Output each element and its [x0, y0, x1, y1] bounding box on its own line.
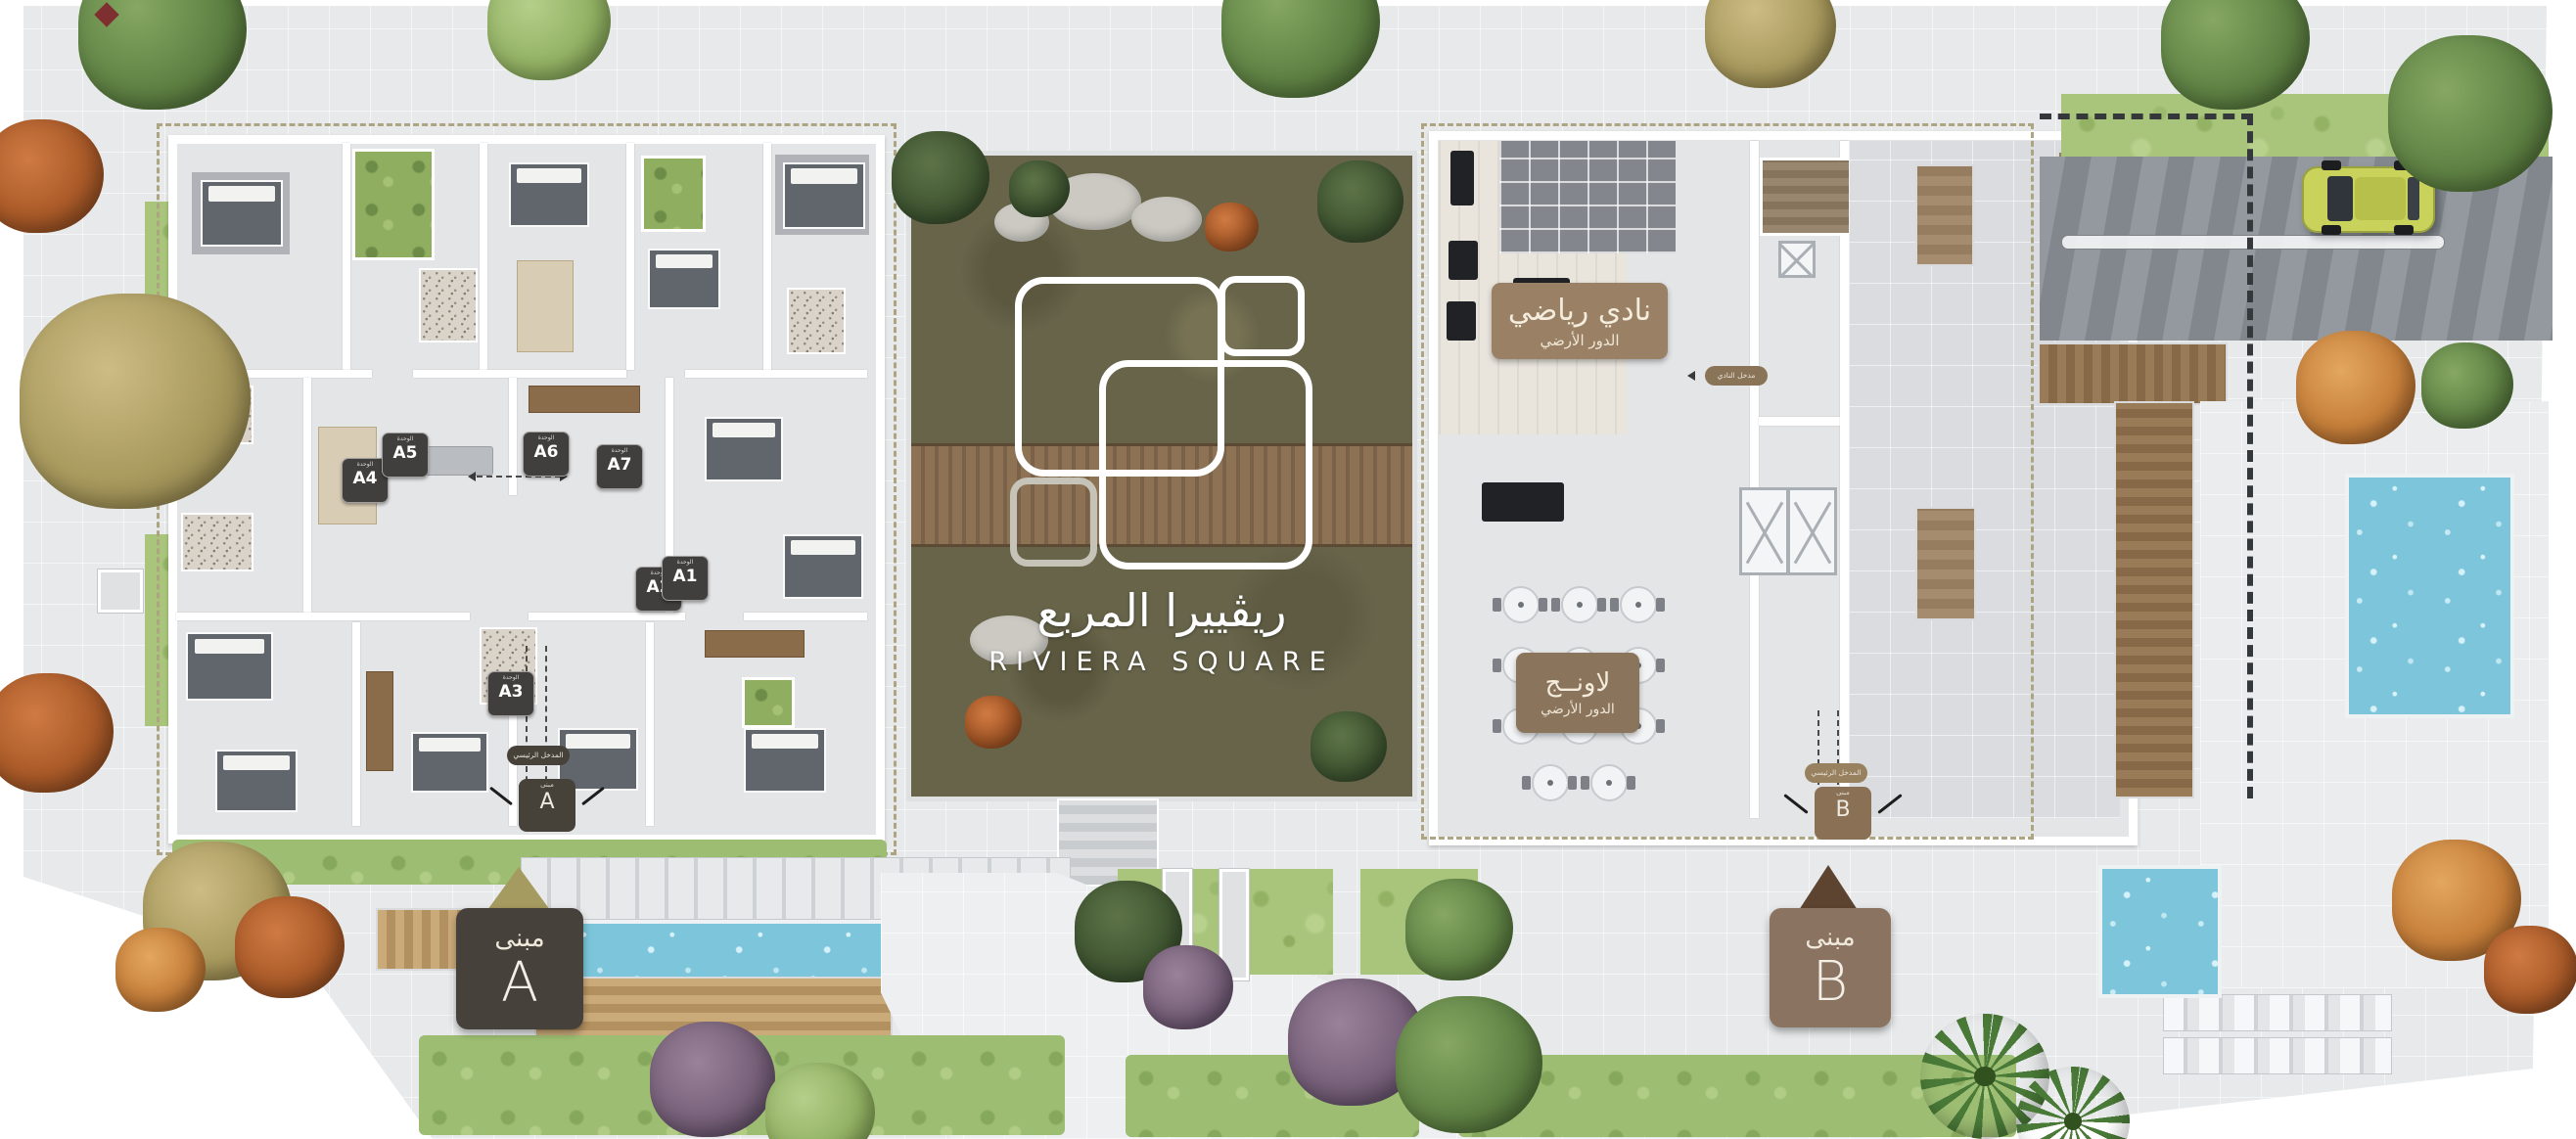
marker-pointer-a [487, 867, 550, 910]
project-title-arabic: ريڤييرا المربع [911, 584, 1412, 637]
project-title-english: RIVIERA SQUARE [911, 647, 1412, 677]
unit-badge-a7: الوحدةA7 [596, 444, 643, 489]
pool [2098, 865, 2222, 998]
unit-badge-a3: الوحدةA3 [487, 671, 534, 716]
tree [115, 928, 206, 1012]
unit-badge-a6: الوحدةA6 [523, 432, 570, 477]
unit-badge-a1: الوحدةA1 [662, 556, 709, 601]
tree [2484, 926, 2576, 1014]
entrance-b-pill: المدخل الرئيسي [1805, 763, 1867, 783]
wood-deck [2038, 342, 2228, 405]
windshield [2327, 176, 2353, 221]
pool [2345, 474, 2514, 718]
central-courtyard: ريڤييرا المربع RIVIERA SQUARE [911, 156, 1412, 797]
entrance-a-badge: مبنى A [519, 779, 575, 832]
lane-divider [2061, 235, 2445, 250]
building-marker-b: مبنى B [1770, 908, 1891, 1027]
logo-square [1099, 360, 1312, 569]
tree [1205, 203, 1259, 251]
marker-pointer-b [1799, 865, 1858, 910]
car-roof [2355, 177, 2406, 220]
tree [965, 696, 1022, 749]
club-entrance-pill: مدخل النادي [1705, 366, 1768, 386]
wheel [2322, 225, 2341, 235]
site-plan: الوحدةA4 الوحدةA5 الوحدةA6 الوحدةA7 الوح… [0, 0, 2576, 1139]
building-marker-a: مبنى A [456, 908, 583, 1029]
building-b: نادي رياضي الدور الأرضي لاونــج الدور ال… [1421, 123, 2132, 840]
stone [1131, 197, 1202, 242]
wheel [2322, 160, 2341, 170]
boundary-dashes [2040, 114, 2253, 119]
entrance-a-pill: المدخل الرئيسي [507, 746, 570, 765]
wheel [2394, 225, 2414, 235]
sports-club-label: نادي رياضي الدور الأرضي [1492, 283, 1668, 359]
unit-badge-a5: الوحدةA5 [382, 433, 429, 478]
utility-pad [98, 569, 143, 613]
boundary-dashes [2247, 114, 2253, 798]
building-b-boundary [1421, 123, 2034, 840]
wood-deck [2114, 401, 2194, 798]
lounge-label: لاونــج الدور الأرضي [1516, 653, 1639, 733]
arrow-left-icon [1687, 371, 1695, 381]
entrance-b-badge: مبنى B [1815, 787, 1871, 840]
rear-glass [2408, 177, 2419, 220]
tree [1317, 160, 1403, 243]
logo-square [1219, 276, 1305, 356]
paver-row [2163, 1037, 2392, 1074]
logo-square [1010, 478, 1097, 567]
tree [1311, 711, 1387, 782]
tree [892, 131, 989, 224]
paver-row [2163, 994, 2392, 1031]
